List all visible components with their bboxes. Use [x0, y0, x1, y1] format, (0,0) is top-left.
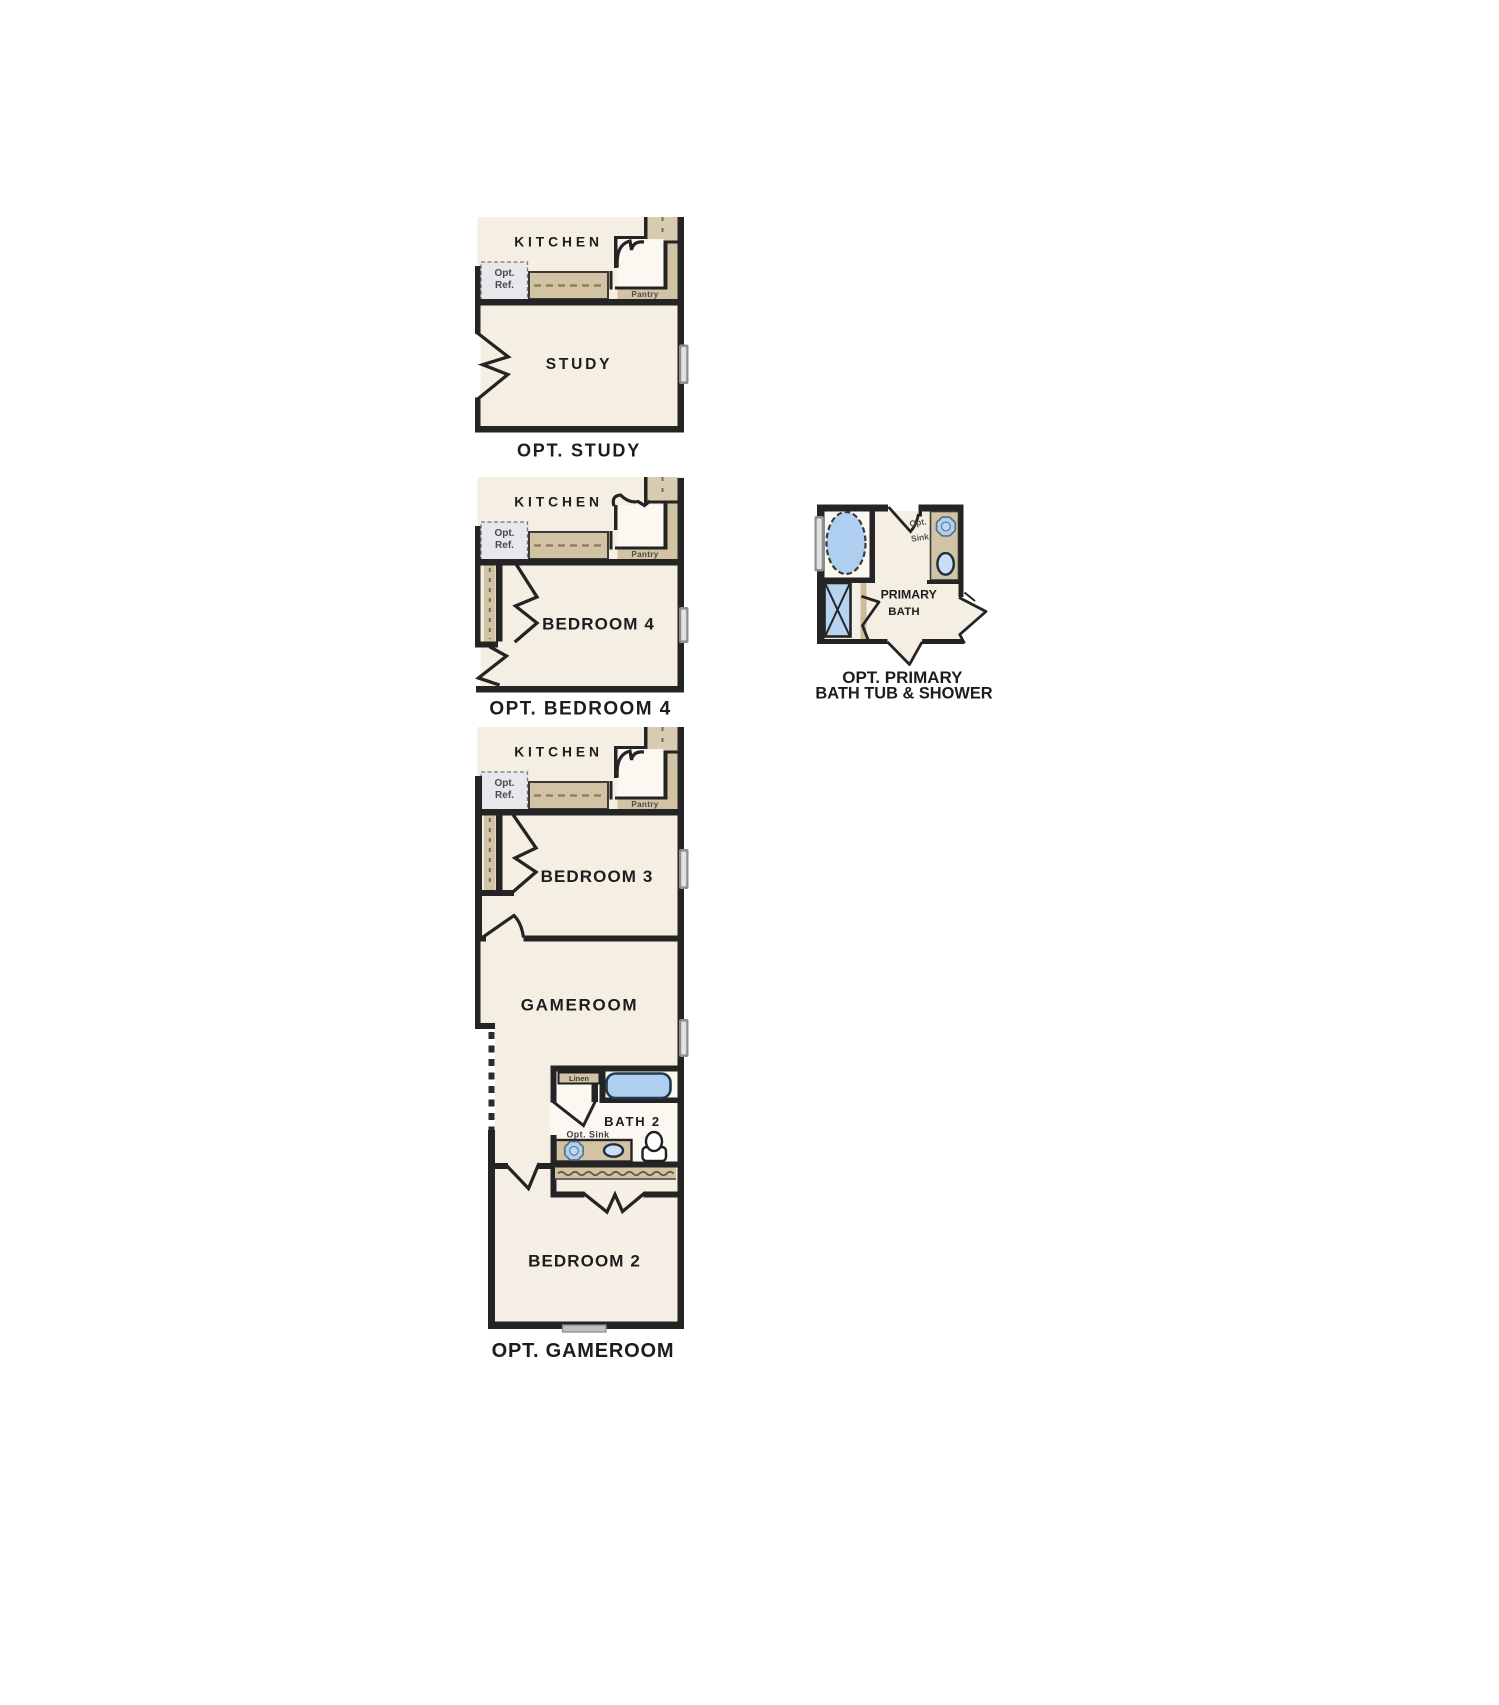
svg-text:KITCHEN: KITCHEN: [514, 745, 603, 760]
svg-text:Ref.: Ref.: [495, 280, 514, 291]
svg-text:OPT. BEDROOM 4: OPT. BEDROOM 4: [489, 699, 671, 720]
svg-text:Opt. Sink: Opt. Sink: [566, 1130, 609, 1140]
svg-text:BEDROOM 3: BEDROOM 3: [541, 867, 654, 886]
svg-text:BATH TUB & SHOWER: BATH TUB & SHOWER: [815, 684, 992, 702]
svg-text:Pantry: Pantry: [631, 800, 658, 809]
svg-text:GAMEROOM: GAMEROOM: [521, 996, 638, 1015]
svg-text:PRIMARY: PRIMARY: [881, 588, 937, 602]
svg-text:Linen: Linen: [569, 1074, 589, 1083]
svg-text:BEDROOM 4: BEDROOM 4: [542, 615, 655, 634]
svg-text:STUDY: STUDY: [546, 356, 613, 373]
svg-text:KITCHEN: KITCHEN: [514, 495, 603, 510]
svg-text:Pantry: Pantry: [631, 550, 658, 559]
svg-text:Opt.: Opt.: [495, 268, 515, 279]
svg-text:OPT. GAMEROOM: OPT. GAMEROOM: [492, 1340, 675, 1362]
svg-text:Opt.: Opt.: [495, 778, 515, 789]
svg-text:Ref.: Ref.: [495, 540, 514, 551]
svg-text:Ref.: Ref.: [495, 790, 514, 801]
svg-text:BEDROOM 2: BEDROOM 2: [528, 1252, 641, 1271]
svg-text:KITCHEN: KITCHEN: [514, 235, 603, 250]
svg-text:Opt.: Opt.: [495, 528, 515, 539]
svg-text:BATH: BATH: [888, 606, 920, 618]
svg-text:BATH 2: BATH 2: [604, 1114, 661, 1129]
svg-text:Pantry: Pantry: [631, 290, 658, 299]
svg-text:OPT. STUDY: OPT. STUDY: [517, 441, 641, 461]
